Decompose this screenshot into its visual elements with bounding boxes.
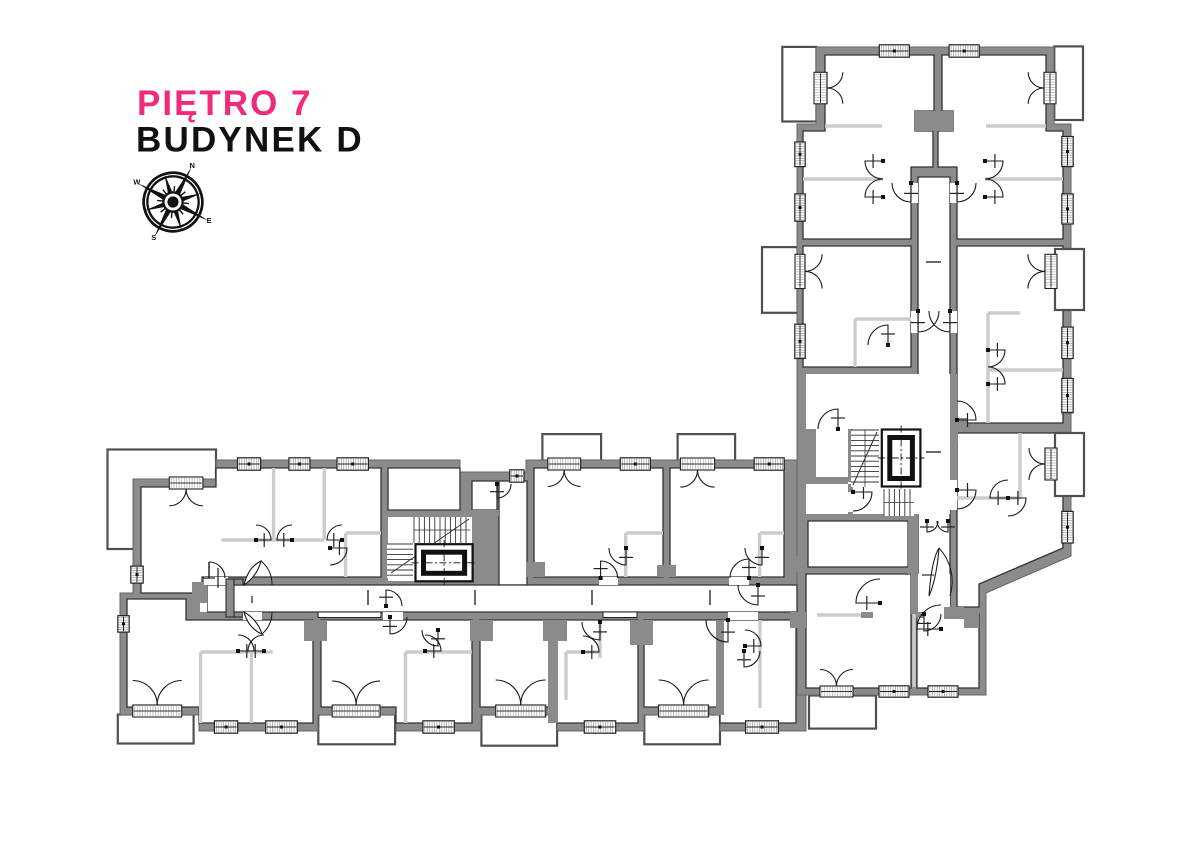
svg-text:N: N xyxy=(190,161,195,170)
svg-text:E: E xyxy=(207,216,212,225)
svg-text:W: W xyxy=(133,178,141,187)
svg-text:BUDYNEK D: BUDYNEK D xyxy=(136,120,364,159)
svg-text:S: S xyxy=(151,233,156,242)
svg-text:PIĘTRO 7: PIĘTRO 7 xyxy=(137,84,312,123)
